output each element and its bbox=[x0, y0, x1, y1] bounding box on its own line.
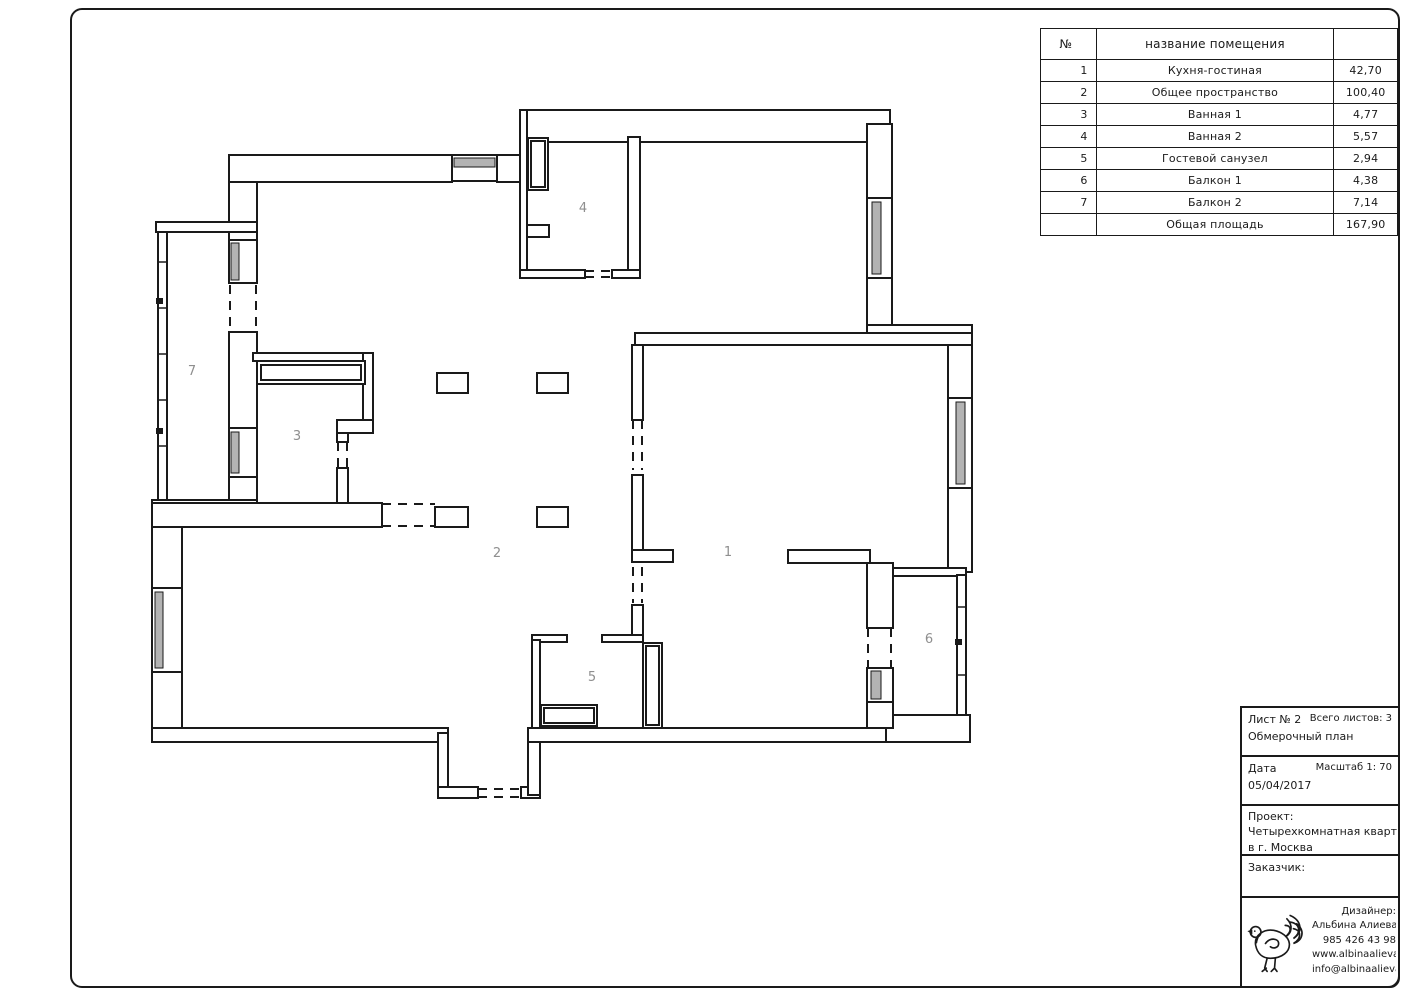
room-label-5: 5 bbox=[588, 670, 596, 685]
cell-num: 2 bbox=[1041, 82, 1097, 104]
header-name: название помещения bbox=[1096, 29, 1334, 60]
designer-name: Альбина Алиева bbox=[1312, 919, 1396, 934]
table-row: 2 Общее пространство 100,40 bbox=[1041, 82, 1398, 104]
cell-num: 7 bbox=[1041, 192, 1097, 214]
cell-name: Ванная 1 bbox=[1096, 104, 1334, 126]
cell-area: 7,14 bbox=[1334, 192, 1398, 214]
sheet-number: Лист № 2 bbox=[1248, 711, 1301, 728]
cell-num: 4 bbox=[1041, 126, 1097, 148]
cell-name: Кухня-гостиная bbox=[1096, 60, 1334, 82]
cell-name: Общее пространство bbox=[1096, 82, 1334, 104]
table-row: 1 Кухня-гостиная 42,70 bbox=[1041, 60, 1398, 82]
cell-name: Гостевой санузел bbox=[1096, 148, 1334, 170]
designer-label: Дизайнер: bbox=[1312, 905, 1396, 920]
room-label-2: 2 bbox=[493, 546, 501, 561]
room-label-7: 7 bbox=[188, 364, 196, 379]
date-label: Дата bbox=[1248, 760, 1276, 777]
room-label-3: 3 bbox=[293, 429, 301, 444]
dove-logo-icon bbox=[1244, 904, 1310, 978]
title-block: Лист № 2 Всего листов: 3 Обмерочный план… bbox=[1240, 706, 1400, 988]
header-area bbox=[1334, 29, 1398, 60]
project-city: в г. Москва bbox=[1248, 840, 1392, 855]
table-header-row: № название помещения bbox=[1041, 29, 1398, 60]
cell-name: Ванная 2 bbox=[1096, 126, 1334, 148]
room-label-1: 1 bbox=[724, 545, 732, 560]
designer-phone: 985 426 43 98 bbox=[1312, 934, 1396, 949]
designer-email: info@albinaalieva.com bbox=[1312, 963, 1396, 978]
room-area-table: № название помещения 1 Кухня-гостиная 42… bbox=[1040, 28, 1398, 236]
table-row: 5 Гостевой санузел 2,94 bbox=[1041, 148, 1398, 170]
cell-area: 100,40 bbox=[1334, 82, 1398, 104]
header-num: № bbox=[1041, 29, 1097, 60]
client-label: Заказчик: bbox=[1248, 859, 1392, 876]
table-total-row: Общая площадь 167,90 bbox=[1041, 214, 1398, 236]
room-label-4: 4 bbox=[579, 201, 587, 216]
sheet-info-section: Лист № 2 Всего листов: 3 Обмерочный план bbox=[1242, 708, 1398, 757]
cell-area: 42,70 bbox=[1334, 60, 1398, 82]
scale-value: Масштаб 1: 70 bbox=[1316, 760, 1392, 777]
cell-area: 4,38 bbox=[1334, 170, 1398, 192]
total-sheets: Всего листов: 3 bbox=[1310, 711, 1392, 728]
table-row: 6 Балкон 1 4,38 bbox=[1041, 170, 1398, 192]
cell-total-label: Общая площадь bbox=[1096, 214, 1334, 236]
project-section: Проект: Четырехкомнатная квартира в г. М… bbox=[1242, 806, 1398, 856]
designer-website: www.albinaalieva.com bbox=[1312, 948, 1396, 963]
date-scale-section: Дата Масштаб 1: 70 05/04/2017 bbox=[1242, 757, 1398, 806]
date-value: 05/04/2017 bbox=[1248, 777, 1392, 794]
cell-num: 5 bbox=[1041, 148, 1097, 170]
room-label-6: 6 bbox=[925, 632, 933, 647]
cell-name: Балкон 2 bbox=[1096, 192, 1334, 214]
document-type: Обмерочный план bbox=[1248, 728, 1392, 745]
table-row: 3 Ванная 1 4,77 bbox=[1041, 104, 1398, 126]
project-label: Проект: bbox=[1248, 809, 1392, 824]
drawing-sheet: 1 2 3 4 5 6 7 № название помещения 1 Кух… bbox=[0, 0, 1414, 1000]
table-row: 4 Ванная 2 5,57 bbox=[1041, 126, 1398, 148]
cell-total-area: 167,90 bbox=[1334, 214, 1398, 236]
cell-num bbox=[1041, 214, 1097, 236]
cell-area: 5,57 bbox=[1334, 126, 1398, 148]
cell-num: 3 bbox=[1041, 104, 1097, 126]
designer-section: Дизайнер: Альбина Алиева 985 426 43 98 w… bbox=[1242, 898, 1398, 984]
cell-num: 6 bbox=[1041, 170, 1097, 192]
project-name: Четырехкомнатная квартира bbox=[1248, 824, 1392, 839]
table-row: 7 Балкон 2 7,14 bbox=[1041, 192, 1398, 214]
cell-num: 1 bbox=[1041, 60, 1097, 82]
cell-area: 2,94 bbox=[1334, 148, 1398, 170]
cell-name: Балкон 1 bbox=[1096, 170, 1334, 192]
cell-area: 4,77 bbox=[1334, 104, 1398, 126]
client-section: Заказчик: bbox=[1242, 856, 1398, 898]
